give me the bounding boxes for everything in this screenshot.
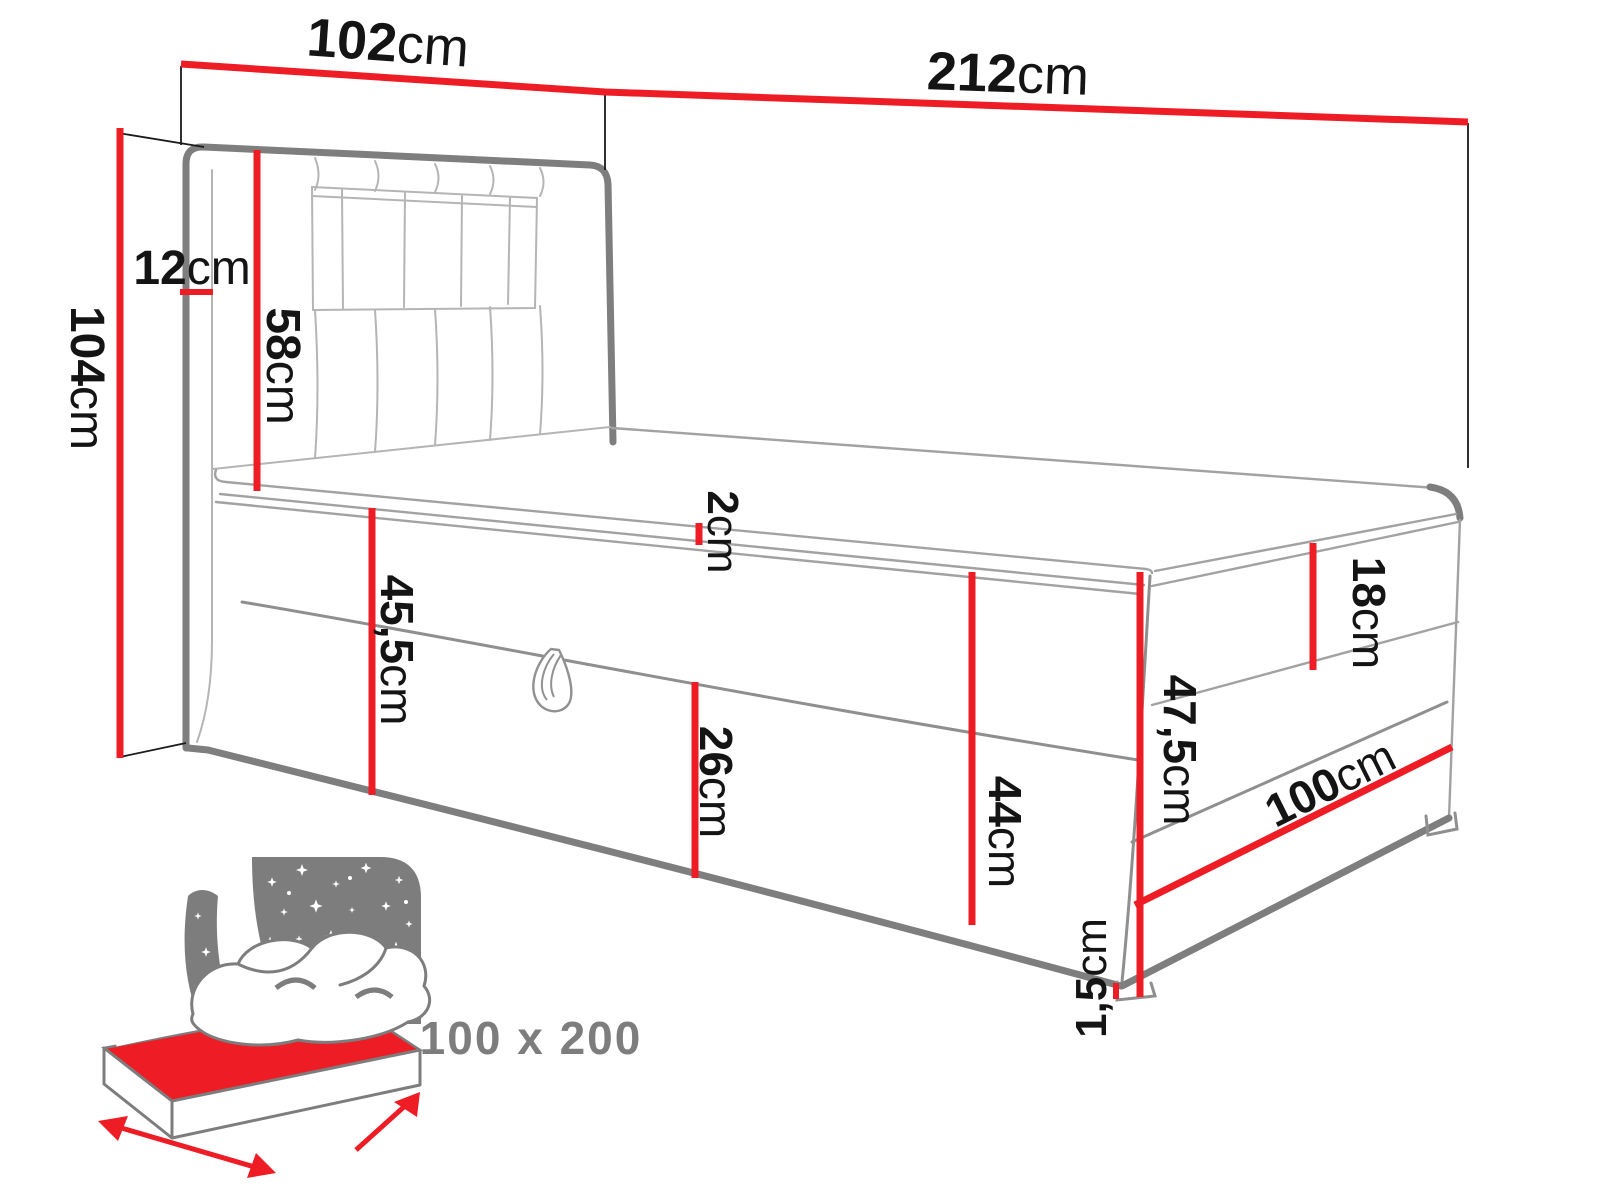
dim-value: 1,5 <box>1067 977 1116 1038</box>
icon-length-arrow <box>356 1092 420 1150</box>
dim-label-base-height: 44cm <box>982 776 1028 889</box>
dim-label-side-box-height: 45,5cm <box>374 575 420 726</box>
dim-label-headboard-above-mattress: 58cm <box>258 307 306 424</box>
dim-label-bed-total-height: 104cm <box>62 306 110 450</box>
dim-unit: cm <box>256 361 309 425</box>
dim-unit: cm <box>1154 764 1206 825</box>
dim-label-mattress-height: 18cm <box>1346 557 1392 670</box>
dim-value: 12 <box>133 242 186 295</box>
box-top-edge <box>216 502 1140 594</box>
dim-unit: cm <box>690 777 742 838</box>
dim-value: 102 <box>305 7 399 73</box>
dim-unit: cm <box>60 386 113 450</box>
dim-value: 2 <box>698 490 747 514</box>
dim-label-bed-total-length: 212cm <box>926 44 1090 104</box>
mattress-piping-side <box>220 494 1144 585</box>
icon-duvet <box>192 932 430 1045</box>
storage-handle <box>533 649 571 711</box>
dim-line-top <box>181 64 1468 122</box>
dim-value: 44 <box>979 776 1031 827</box>
bed-dimension-diagram: 102cm 212cm 104cm 12cm 58cm 2cm 45,5cm 2… <box>0 0 1600 1200</box>
dim-label-glide-height: 1,5cm <box>1070 918 1114 1038</box>
dim-unit: cm <box>1067 918 1116 977</box>
box-right-edge <box>1449 520 1460 818</box>
dim-unit: cm <box>1016 44 1090 106</box>
box-foot-bottom-edge <box>1122 818 1449 986</box>
dim-label-headboard-width: 102cm <box>305 10 470 75</box>
headboard-channels <box>315 306 543 458</box>
mattress-size-badge: 100 x 200 <box>420 1015 643 1061</box>
dim-value: 104 <box>60 306 113 386</box>
dim-label-topper-height: 2cm <box>700 490 744 573</box>
dim-unit: cm <box>979 827 1031 888</box>
dim-label-storage-flap-height: 26cm <box>693 726 739 839</box>
dim-label-headboard-depth: 12cm <box>133 245 250 293</box>
dim-value: 58 <box>256 307 309 360</box>
dim-value: 212 <box>926 41 1018 104</box>
dim-value: 45,5 <box>371 575 423 665</box>
mattress-piping-foot <box>1152 522 1458 586</box>
mattress-front-edge <box>215 470 1152 573</box>
dim-value: 26 <box>690 726 742 777</box>
headboard-panel <box>312 187 537 310</box>
mattress-head-edge <box>213 427 610 469</box>
mattress-back-edge <box>612 428 1436 488</box>
dim-unit: cm <box>698 515 747 574</box>
dim-label-foot-corner-height: 47,5cm <box>1157 675 1203 826</box>
extension-lines <box>118 66 1468 757</box>
dim-unit: cm <box>1343 608 1395 669</box>
dim-unit: cm <box>395 14 471 79</box>
box-front-corner-edge <box>1122 576 1150 982</box>
dim-value: 47,5 <box>1154 675 1206 765</box>
dim-value: 18 <box>1343 557 1395 608</box>
dim-unit: cm <box>371 664 423 725</box>
bed-size-icon <box>98 857 430 1178</box>
dim-unit: cm <box>187 242 251 295</box>
mattress-foot-edge <box>1155 514 1456 571</box>
